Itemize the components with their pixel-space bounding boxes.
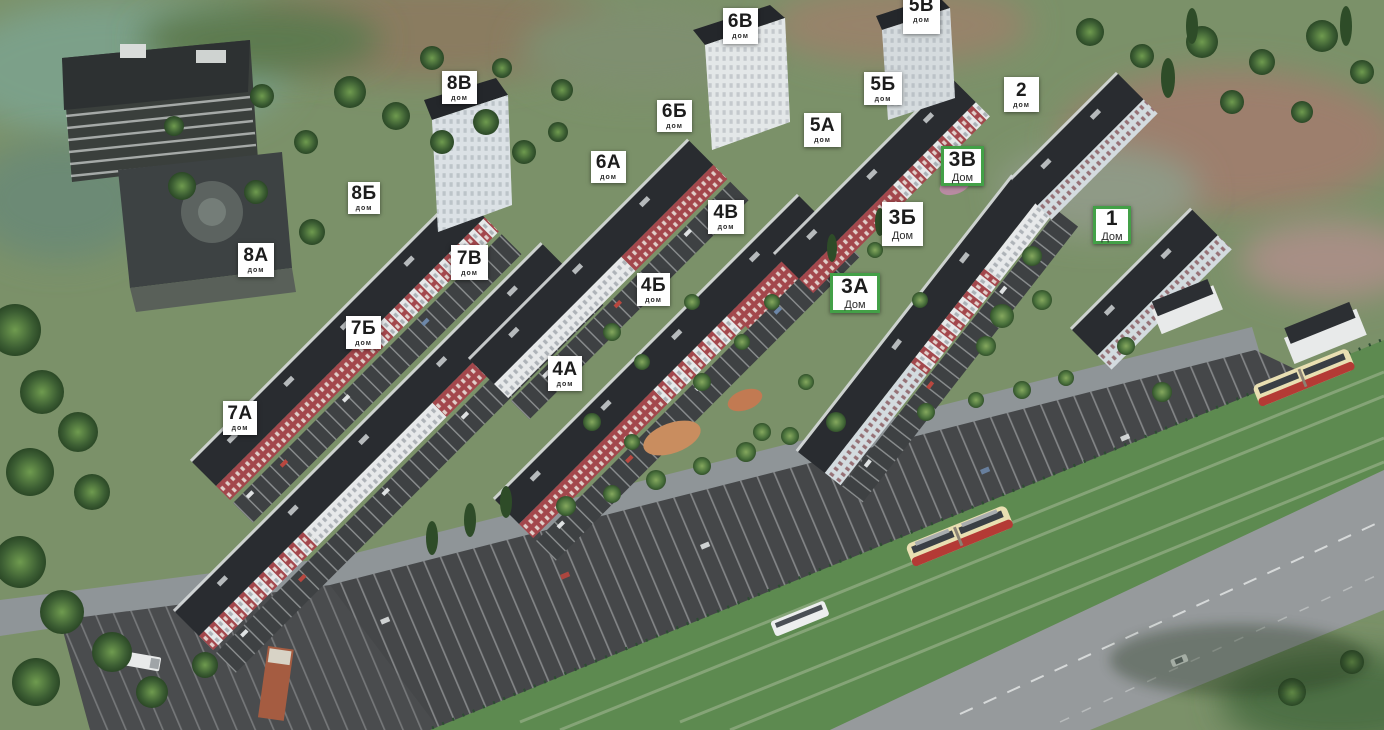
building-marker-sublabel: Дом xyxy=(1101,232,1122,243)
building-marker-number: 4В xyxy=(713,203,738,222)
building-marker-number: 3В xyxy=(949,149,977,170)
building-marker-number: 1 xyxy=(1106,208,1118,229)
building-marker-sublabel: дом xyxy=(666,123,683,130)
building-marker-sublabel: Дом xyxy=(952,173,973,184)
building-marker-number: 6Б xyxy=(662,102,687,121)
building-marker-3В[interactable]: 3ВДом xyxy=(941,146,984,186)
building-marker-sublabel: Дом xyxy=(892,231,913,242)
building-marker-sublabel: дом xyxy=(1013,102,1030,109)
building-marker-sublabel: дом xyxy=(461,270,478,277)
building-marker-sublabel: дом xyxy=(875,96,892,103)
building-marker-7Б[interactable]: 7Бдом xyxy=(346,316,381,349)
building-marker-number: 7А xyxy=(227,404,252,423)
building-marker-number: 7Б xyxy=(351,319,376,338)
masterplan-stage: 6Вдом5Вдом8Вдом5Бдом2дом6Бдом5Адом3ВДом6… xyxy=(0,0,1384,730)
building-marker-5Б[interactable]: 5Бдом xyxy=(864,72,902,105)
building-marker-8Б[interactable]: 8Бдом xyxy=(348,182,380,214)
building-marker-3Б[interactable]: 3БДом xyxy=(882,202,923,246)
building-marker-number: 3А xyxy=(841,276,869,297)
building-marker-sublabel: дом xyxy=(557,381,574,388)
building-marker-sublabel: дом xyxy=(232,425,249,432)
building-marker-6Б[interactable]: 6Бдом xyxy=(657,100,692,132)
building-marker-sublabel: дом xyxy=(913,17,930,24)
building-marker-sublabel: дом xyxy=(600,174,617,181)
building-marker-8В[interactable]: 8Вдом xyxy=(442,71,477,104)
building-marker-sublabel: дом xyxy=(248,267,265,274)
building-marker-number: 5В xyxy=(909,0,934,15)
building-marker-sublabel: дом xyxy=(718,224,735,231)
building-marker-sublabel: дом xyxy=(451,95,468,102)
building-marker-number: 7В xyxy=(457,249,482,268)
building-marker-number: 2 xyxy=(1016,81,1027,100)
building-marker-3А[interactable]: 3АДом xyxy=(830,273,880,313)
building-marker-number: 6В xyxy=(728,12,753,31)
building-marker-6В[interactable]: 6Вдом xyxy=(723,8,758,44)
building-marker-5В[interactable]: 5Вдом xyxy=(903,0,940,34)
building-marker-4В[interactable]: 4Вдом xyxy=(708,200,744,234)
building-marker-number: 8А xyxy=(243,246,268,265)
building-marker-7А[interactable]: 7Адом xyxy=(223,401,257,435)
building-marker-6А[interactable]: 6Адом xyxy=(591,151,626,183)
building-marker-number: 8Б xyxy=(351,184,376,203)
building-marker-sublabel: Дом xyxy=(844,300,865,311)
building-marker-4Б[interactable]: 4Бдом xyxy=(637,273,670,306)
building-markers-layer: 6Вдом5Вдом8Вдом5Бдом2дом6Бдом5Адом3ВДом6… xyxy=(0,0,1384,730)
building-marker-sublabel: дом xyxy=(814,137,831,144)
building-marker-5А[interactable]: 5Адом xyxy=(804,113,841,147)
building-marker-number: 5Б xyxy=(870,75,895,94)
building-marker-4А[interactable]: 4Адом xyxy=(548,356,582,391)
building-marker-number: 5А xyxy=(810,116,835,135)
building-marker-number: 4А xyxy=(552,360,577,379)
building-marker-sublabel: дом xyxy=(732,33,749,40)
building-marker-number: 3Б xyxy=(889,207,917,228)
building-marker-sublabel: дом xyxy=(355,340,372,347)
building-marker-2[interactable]: 2дом xyxy=(1004,77,1039,112)
building-marker-number: 8В xyxy=(447,74,472,93)
building-marker-sublabel: дом xyxy=(356,205,373,212)
building-marker-number: 4Б xyxy=(641,276,666,295)
building-marker-8А[interactable]: 8Адом xyxy=(238,243,274,277)
building-marker-1[interactable]: 1Дом xyxy=(1093,206,1131,244)
building-marker-7В[interactable]: 7Вдом xyxy=(451,245,488,280)
building-marker-number: 6А xyxy=(596,153,621,172)
building-marker-sublabel: дом xyxy=(645,297,662,304)
